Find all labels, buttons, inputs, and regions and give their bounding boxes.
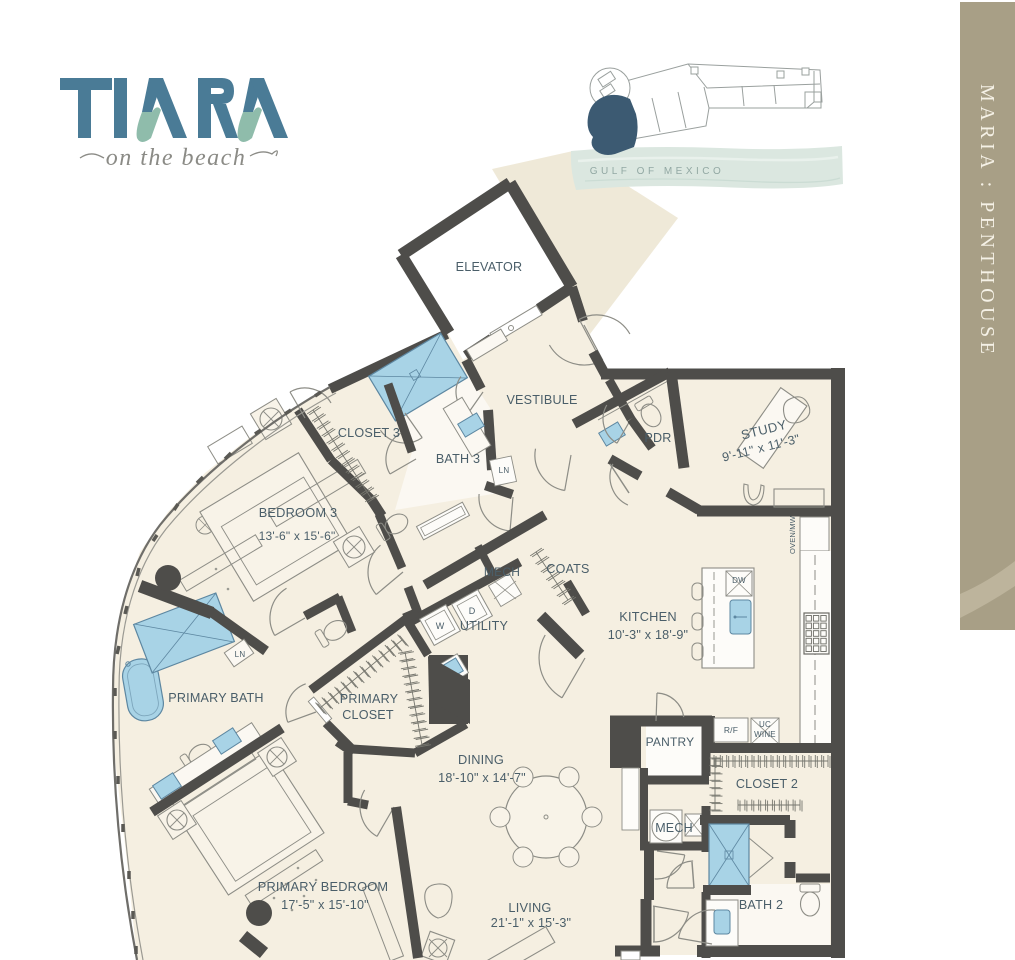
svg-text:10'-3" x 18'-9": 10'-3" x 18'-9" [608, 628, 688, 642]
svg-text:KITCHEN: KITCHEN [619, 609, 677, 624]
svg-text:UTILITY: UTILITY [460, 619, 509, 633]
svg-text:LN: LN [499, 466, 510, 475]
svg-text:OVEN/MW: OVEN/MW [788, 515, 797, 554]
svg-text:21'-1" x 15'-3": 21'-1" x 15'-3" [491, 916, 571, 930]
svg-text:PANTRY: PANTRY [646, 735, 695, 749]
svg-text:UC: UC [759, 720, 771, 729]
svg-text:WINE: WINE [754, 730, 776, 739]
svg-text:PRIMARY BEDROOM: PRIMARY BEDROOM [258, 879, 389, 894]
svg-text:MARIA : PENTHOUSE: MARIA : PENTHOUSE [976, 84, 998, 358]
svg-text:DINING: DINING [458, 752, 504, 767]
svg-text:CLOSET 3: CLOSET 3 [338, 426, 400, 440]
svg-text:ELEVATOR: ELEVATOR [456, 260, 523, 274]
svg-text:GULF OF MEXICO: GULF OF MEXICO [590, 166, 725, 177]
svg-text:PDR: PDR [644, 431, 671, 445]
svg-text:COATS: COATS [546, 562, 589, 576]
svg-text:LIVING: LIVING [508, 900, 551, 915]
svg-text:13'-6" x 15'-6": 13'-6" x 15'-6" [259, 529, 336, 543]
svg-text:MECH: MECH [484, 565, 520, 579]
svg-text:17'-5" x 15'-10": 17'-5" x 15'-10" [281, 898, 369, 912]
svg-text:PRIMARY BATH: PRIMARY BATH [168, 691, 263, 705]
svg-text:on the beach: on the beach [106, 145, 247, 171]
svg-text:BATH 3: BATH 3 [436, 452, 480, 466]
svg-text:BATH 2: BATH 2 [739, 898, 783, 912]
svg-text:MECH: MECH [655, 821, 693, 835]
svg-text:LN: LN [235, 650, 246, 659]
svg-text:PRIMARY: PRIMARY [340, 692, 399, 706]
svg-text:BEDROOM 3: BEDROOM 3 [259, 505, 338, 520]
svg-text:VESTIBULE: VESTIBULE [506, 393, 577, 407]
svg-text:D: D [469, 606, 476, 616]
svg-text:CLOSET: CLOSET [342, 708, 394, 722]
svg-text:R/F: R/F [724, 725, 738, 735]
svg-text:CLOSET 2: CLOSET 2 [736, 777, 798, 791]
svg-text:W: W [436, 621, 445, 631]
svg-text:18'-10" x 14'-7": 18'-10" x 14'-7" [438, 771, 526, 785]
svg-text:DW: DW [732, 576, 746, 585]
